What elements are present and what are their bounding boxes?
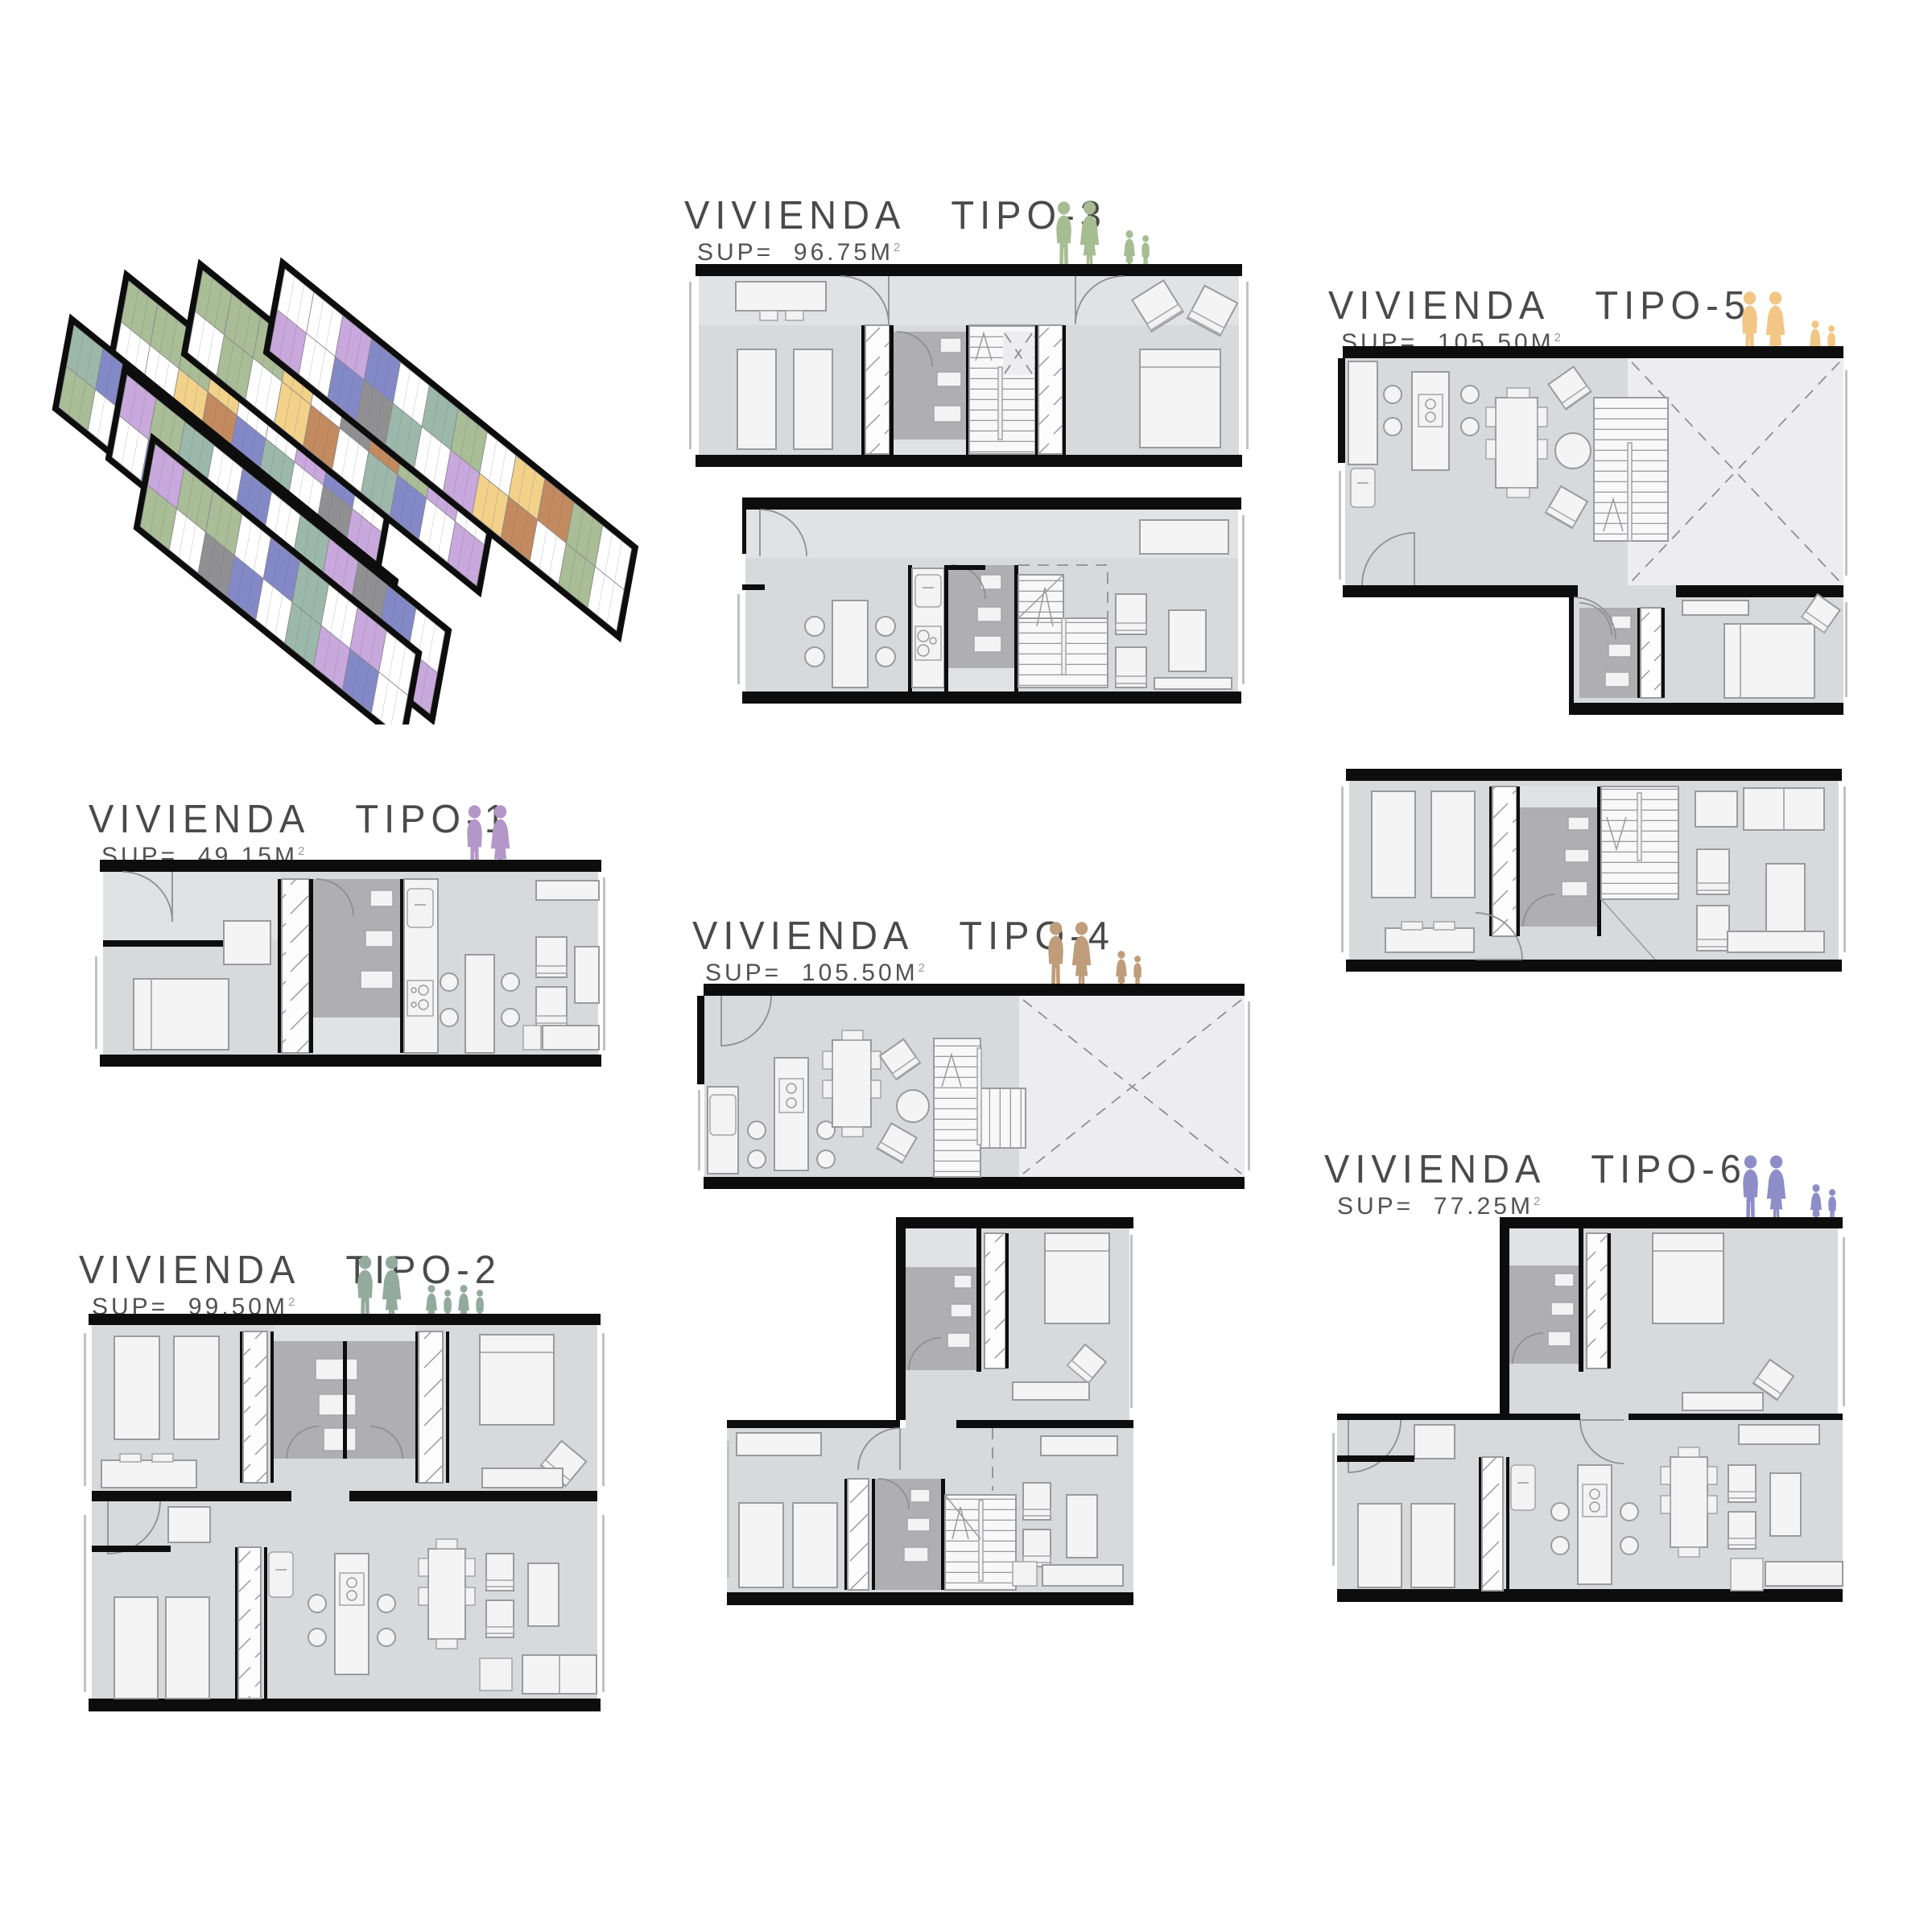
area-exponent: 2 (288, 1295, 298, 1309)
person-figure (1053, 201, 1075, 272)
area-prefix: SUP= (1337, 1193, 1414, 1220)
person-figure (1765, 1155, 1787, 1226)
floor-plan-tipo5-entry (1338, 346, 1849, 715)
person-figure (1071, 922, 1092, 993)
area-exponent: 2 (298, 844, 308, 858)
panel-title: VIVIENDA (89, 796, 310, 840)
person-figure (1740, 1155, 1761, 1226)
occupant-figures (1740, 1149, 1838, 1226)
typology-panel-tipo1: VIVIENDATIPO-1 SUP= 49.15M2 (89, 795, 620, 1085)
area-exponent: 2 (1534, 1195, 1543, 1208)
panel-area: SUP= 96.75M2 (697, 239, 1256, 266)
floor-plan-tipo5-upper (1341, 769, 1847, 972)
occupant-figures (1045, 915, 1143, 993)
floor-plan-tipo1 (95, 860, 606, 1071)
panel-title: VIVIENDA (684, 192, 906, 237)
area-exponent: 2 (919, 961, 928, 975)
person-figure (1045, 922, 1067, 993)
panel-area: SUP= 105.50M2 (705, 960, 1256, 987)
area-exponent: 2 (1554, 331, 1564, 345)
panel-titles: VIVIENDATIPO-2 SUP= 99.50M2 (79, 1246, 610, 1321)
typology-panel-tipo5: VIVIENDATIPO-5 SUP= 105.50M2 (1328, 282, 1860, 990)
floor-plan-tipo4-entry (697, 984, 1251, 1189)
floor-plan-tipo3-upper (689, 264, 1249, 467)
typology-panel-tipo6: VIVIENDATIPO-6 SUP= 77.25M2 (1324, 1146, 1856, 1616)
area-exponent: 2 (894, 241, 903, 254)
occupant-figures (1053, 195, 1151, 272)
area-value: 96.75M (794, 239, 894, 266)
person-figure (1079, 201, 1100, 272)
area-value: 105.50M (802, 960, 919, 986)
area-value: 77.25M (1434, 1193, 1534, 1220)
axonometric-building-diagram (0, 0, 708, 724)
panel-title: VIVIENDA (1324, 1146, 1546, 1191)
panel-tipo: TIPO-6 (1591, 1146, 1746, 1191)
typology-panel-tipo3: VIVIENDATIPO-3 SUP= 96.75M2 (684, 192, 1256, 715)
panel-title: VIVIENDA (79, 1247, 300, 1291)
panel-title: VIVIENDA (692, 913, 914, 957)
panel-titles: VIVIENDATIPO-3 SUP= 96.75M2 (684, 192, 1256, 266)
floor-plan-tipo3-lower (737, 497, 1246, 704)
floor-plan-tipo4-upper (727, 1217, 1133, 1608)
typology-panel-tipo2: VIVIENDATIPO-2 SUP= 99.50M2 (79, 1246, 610, 1737)
panel-title: VIVIENDA (1328, 283, 1550, 327)
typology-panel-tipo4: VIVIENDATIPO-4 SUP= 105.50M2 (692, 912, 1256, 1624)
panel-titles: VIVIENDATIPO-4 SUP= 105.50M2 (692, 912, 1256, 987)
floor-plan-tipo2 (84, 1314, 605, 1723)
area-prefix: SUP= (697, 239, 774, 266)
area-prefix: SUP= (705, 960, 782, 986)
panel-tipo: TIPO-5 (1595, 283, 1750, 327)
typology-sheet: VIVIENDATIPO-3 SUP= 96.75M2 (0, 0, 1932, 1932)
floor-plan-tipo6 (1332, 1217, 1847, 1602)
